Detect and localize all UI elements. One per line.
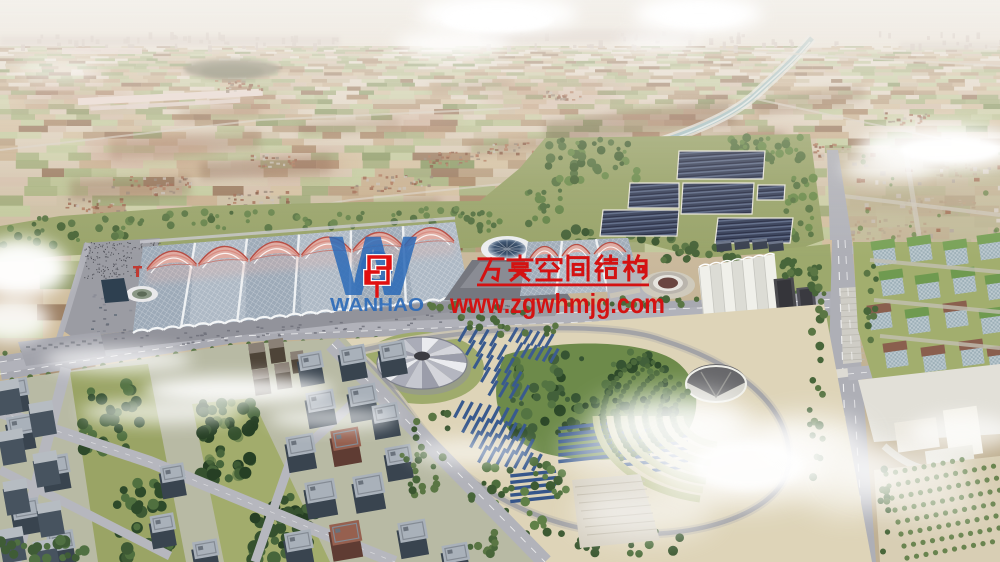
svg-text:www.zgwhmjg.com: www.zgwhmjg.com xyxy=(449,288,665,319)
svg-text:WANHAO: WANHAO xyxy=(330,295,424,315)
